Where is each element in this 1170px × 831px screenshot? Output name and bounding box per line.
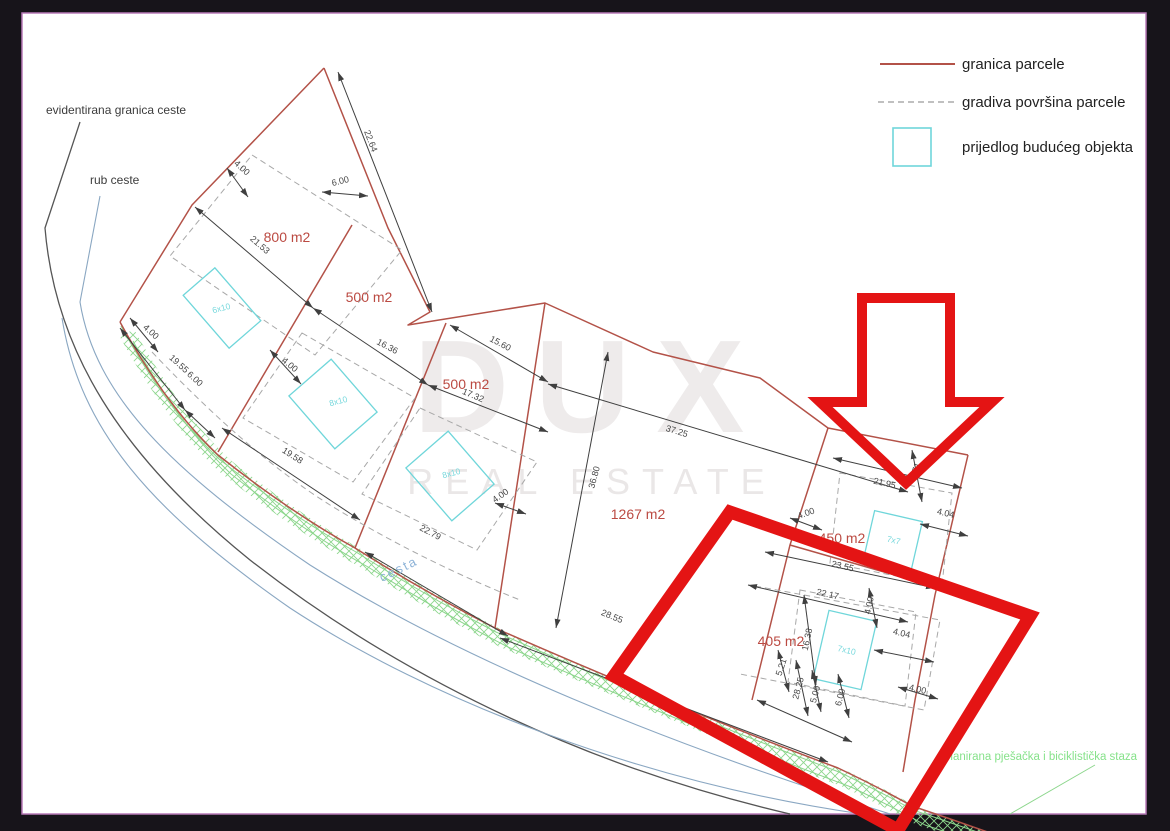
parcel-label-800: 800 m2 (264, 229, 311, 245)
bike-path-label: planirana pješačka i biciklistička staza (944, 751, 1138, 763)
site-plan-screenshot: DUX REAL ESTATE 6 (0, 0, 1170, 831)
legend-item-2: gradiva površina parcele (962, 94, 1125, 111)
site-plan-svg: DUX REAL ESTATE 6 (0, 0, 1170, 831)
legend-item-3: prijedlog budućeg objekta (962, 139, 1134, 156)
legend-item-1: granica parcele (962, 56, 1065, 73)
parcel-label-500b: 500 m2 (443, 376, 490, 392)
legend-cyan-square-sample (893, 128, 931, 166)
road-boundary-callout: evidentirana granica ceste (46, 103, 186, 117)
parcel-label-1267: 1267 m2 (611, 506, 666, 522)
road-edge-callout: rub ceste (90, 173, 140, 187)
parcel-label-405: 405 m2 (758, 633, 805, 649)
parcel-label-500a: 500 m2 (346, 289, 393, 305)
